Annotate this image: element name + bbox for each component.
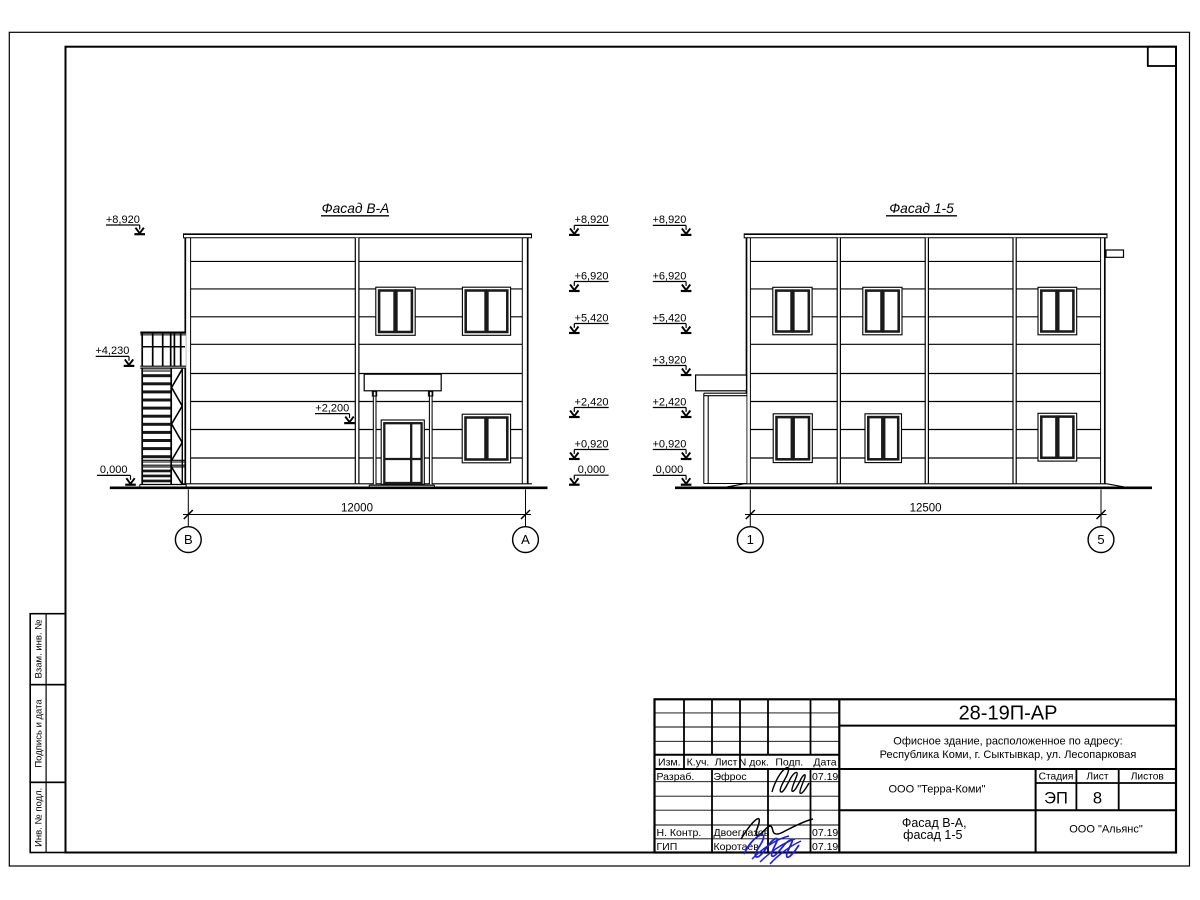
svg-text:0,000: 0,000 [656,464,684,476]
svg-text:+8,920: +8,920 [652,214,686,226]
svg-text:ООО "Альянс": ООО "Альянс" [1069,824,1143,836]
svg-text:Взам. инв. №: Взам. инв. № [34,620,45,679]
svg-text:+8,920: +8,920 [575,214,609,226]
svg-text:12500: 12500 [910,502,942,514]
svg-text:В: В [184,532,193,547]
svg-text:Эфрос: Эфрос [714,771,747,783]
svg-text:8: 8 [1093,790,1102,808]
svg-text:+5,420: +5,420 [575,312,609,324]
svg-text:+2,420: +2,420 [652,396,686,408]
svg-text:ЭП: ЭП [1044,790,1068,808]
svg-text:+2,420: +2,420 [575,396,609,408]
svg-text:ООО "Терра-Коми": ООО "Терра-Коми" [888,784,985,796]
svg-text:Листов: Листов [1131,771,1164,782]
svg-text:Лист: Лист [715,757,738,769]
svg-text:+6,920: +6,920 [652,270,686,282]
svg-text:07.19: 07.19 [812,827,838,839]
svg-text:28-19П-АР: 28-19П-АР [959,703,1058,725]
svg-text:+0,920: +0,920 [652,438,686,450]
svg-text:Подпись и дата: Подпись и дата [34,699,45,768]
svg-text:фасад 1-5: фасад 1-5 [903,828,962,842]
svg-text:А: А [521,532,530,547]
svg-text:+0,920: +0,920 [575,438,609,450]
svg-text:+5,420: +5,420 [652,312,686,324]
svg-text:07.19: 07.19 [812,771,838,783]
svg-text:Лист: Лист [1086,771,1108,782]
svg-text:0,000: 0,000 [100,464,128,476]
svg-text:Республика Коми, г. Сыктывкар,: Республика Коми, г. Сыктывкар, ул. Лесоп… [880,749,1137,761]
svg-text:07.19: 07.19 [812,841,838,853]
svg-text:Коротаев: Коротаев [714,841,760,853]
svg-text:+6,920: +6,920 [575,270,609,282]
svg-text:N док.: N док. [739,757,769,769]
svg-text:Фасад В-А: Фасад В-А [322,201,390,216]
svg-text:0,000: 0,000 [578,464,606,476]
svg-text:ГИП: ГИП [657,841,678,853]
svg-text:+2,200: +2,200 [315,402,349,414]
svg-text:Н. Контр.: Н. Контр. [657,827,702,839]
svg-text:Инв. № подл.: Инв. № подл. [34,788,45,847]
svg-text:1: 1 [747,532,754,547]
svg-text:Изм.: Изм. [658,757,681,769]
svg-text:Разраб.: Разраб. [657,771,695,783]
svg-text:12000: 12000 [341,502,373,514]
svg-text:Дата: Дата [813,757,836,769]
svg-text:+8,920: +8,920 [106,214,140,226]
svg-text:К.уч.: К.уч. [687,757,710,769]
svg-text:5: 5 [1097,532,1104,547]
svg-text:Стадия: Стадия [1039,771,1074,782]
svg-text:Фасад 1-5: Фасад 1-5 [889,201,954,216]
svg-text:Подп.: Подп. [775,757,803,769]
svg-text:Офисное здание, расположенное: Офисное здание, расположенное по адресу: [893,736,1122,748]
svg-text:+4,230: +4,230 [95,345,129,357]
svg-text:+3,920: +3,920 [652,354,686,366]
